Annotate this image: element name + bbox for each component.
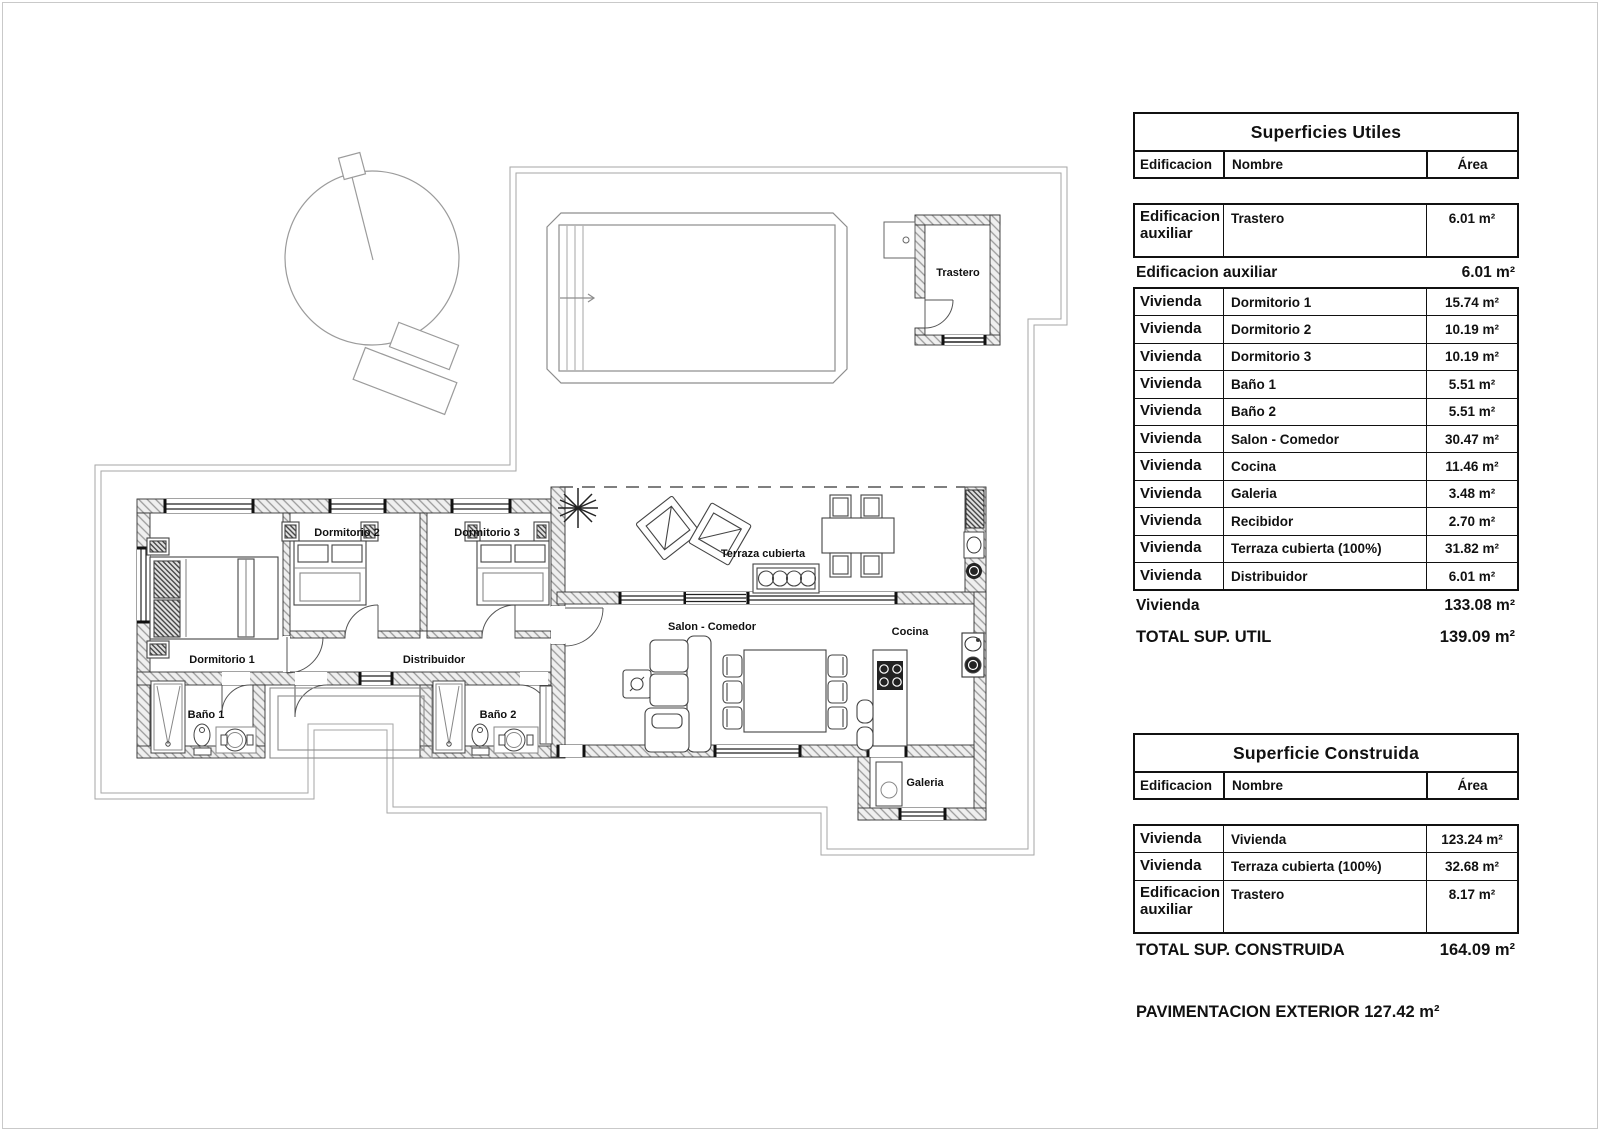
cell-edificacion: Vivienda	[1135, 481, 1223, 507]
room-label-terraza-cubierta: Terraza cubierta	[721, 548, 806, 560]
cell-edificacion: Vivienda	[1135, 508, 1223, 534]
cell-area: 15.74 m²	[1426, 289, 1517, 315]
cell-area: 2.70 m²	[1426, 508, 1517, 534]
summary-row: TOTAL SUP. UTIL139.09 m²	[1133, 620, 1519, 654]
table-row: ViviendaBaño 15.51 m²	[1135, 370, 1517, 397]
room-label-dormitorio-3: Dormitorio 3	[454, 527, 519, 539]
cell-edificacion: Edificacion auxiliar	[1135, 881, 1223, 932]
cell-area: 11.46 m²	[1426, 453, 1517, 479]
room-label-dormitorio-2: Dormitorio 2	[314, 527, 379, 539]
kitchen-sink	[962, 633, 984, 677]
table-header: Superficies Utiles EdificacionNombreÁrea	[1133, 112, 1519, 179]
column-header-2: Área	[1426, 773, 1517, 798]
table-rows-box: ViviendaVivienda123.24 m²ViviendaTerraza…	[1133, 824, 1519, 934]
pavimentacion-exterior-note: PAVIMENTACION EXTERIOR 127.42 m²	[1136, 1003, 1439, 1022]
table-row: Edificacion auxiliarTrastero8.17 m²	[1135, 880, 1517, 932]
lounge-chair-1	[636, 496, 701, 561]
galeria-fixtures	[876, 762, 902, 806]
column-header-row: EdificacionNombreÁrea	[1135, 771, 1517, 798]
cell-nombre: Dormitorio 2	[1223, 316, 1426, 342]
cell-area: 8.17 m²	[1426, 881, 1517, 932]
table-row: ViviendaDormitorio 115.74 m²	[1135, 289, 1517, 315]
cell-area: 3.48 m²	[1426, 481, 1517, 507]
cell-nombre: Distribuidor	[1223, 563, 1426, 589]
trastero-window	[942, 335, 987, 345]
table-rows-box: Edificacion auxiliarTrastero6.01 m²	[1133, 203, 1519, 258]
superficies-utiles-table: Superficies Utiles EdificacionNombreÁrea…	[1133, 112, 1519, 654]
entrance-porch	[270, 688, 432, 758]
table-row: ViviendaTerraza cubierta (100%)32.68 m²	[1135, 852, 1517, 879]
dining-table	[723, 650, 847, 732]
column-header-1: Nombre	[1223, 773, 1426, 798]
column-header-row: EdificacionNombreÁrea	[1135, 150, 1517, 177]
cell-nombre: Baño 1	[1223, 371, 1426, 397]
summary-value: 133.08 m²	[1444, 597, 1515, 615]
room-label-trastero: Trastero	[936, 267, 980, 279]
sink-bano-2	[494, 727, 538, 753]
cell-edificacion: Vivienda	[1135, 344, 1223, 370]
bed-dormitorio-1	[147, 538, 278, 658]
ac-unit	[884, 222, 915, 258]
cell-edificacion: Vivienda	[1135, 289, 1223, 315]
cell-edificacion: Vivienda	[1135, 371, 1223, 397]
cell-nombre: Terraza cubierta (100%)	[1223, 536, 1426, 562]
cell-edificacion: Vivienda	[1135, 563, 1223, 589]
room-label-dormitorio-1: Dormitorio 1	[189, 654, 254, 666]
shower-bano-2	[433, 681, 465, 753]
terrace	[558, 487, 984, 593]
table-body: ViviendaVivienda123.24 m²ViviendaTerraza…	[1133, 824, 1519, 968]
table-row: ViviendaDistribuidor6.01 m²	[1135, 562, 1517, 589]
summary-row: TOTAL SUP. CONSTRUIDA164.09 m²	[1133, 934, 1519, 968]
cell-edificacion: Vivienda	[1135, 536, 1223, 562]
summary-row: Vivienda133.08 m²	[1133, 591, 1519, 620]
table-rows-box: ViviendaDormitorio 115.74 m²ViviendaDorm…	[1133, 287, 1519, 591]
kitchen-fixtures	[857, 633, 984, 750]
table-row: ViviendaCocina11.46 m²	[1135, 452, 1517, 479]
column-header-2: Área	[1426, 152, 1517, 177]
column-header-0: Edificacion	[1135, 152, 1223, 177]
cell-nombre: Dormitorio 1	[1223, 289, 1426, 315]
summary-label: TOTAL SUP. UTIL	[1136, 628, 1271, 647]
well-feature	[285, 153, 459, 415]
shower-bano-1	[151, 681, 185, 753]
cell-area: 32.68 m²	[1426, 853, 1517, 879]
cell-edificacion: Edificacion auxiliar	[1135, 205, 1223, 256]
cell-nombre: Galeria	[1223, 481, 1426, 507]
tv-unit	[623, 670, 651, 698]
column-header-0: Edificacion	[1135, 773, 1223, 798]
sofa	[645, 636, 711, 752]
trastero-building	[884, 215, 1000, 345]
cell-nombre: Recibidor	[1223, 508, 1426, 534]
summary-value: 6.01 m²	[1462, 264, 1515, 282]
summary-row: Edificacion auxiliar6.01 m²	[1133, 258, 1519, 287]
terrace-planter	[753, 564, 819, 593]
table-row: ViviendaSalon - Comedor30.47 m²	[1135, 425, 1517, 452]
table-body: Edificacion auxiliarTrastero6.01 m²Edifi…	[1133, 203, 1519, 654]
table-row: ViviendaGaleria3.48 m²	[1135, 480, 1517, 507]
table-title: Superficies Utiles	[1135, 114, 1517, 150]
table-row: ViviendaDormitorio 210.19 m²	[1135, 315, 1517, 342]
terrace-plant	[558, 488, 598, 528]
cell-edificacion: Vivienda	[1135, 426, 1223, 452]
room-label-cocina: Cocina	[892, 626, 930, 638]
toilet-bano-2	[472, 724, 489, 755]
cell-nombre: Vivienda	[1223, 826, 1426, 852]
cell-edificacion: Vivienda	[1135, 399, 1223, 425]
column-header-1: Nombre	[1223, 152, 1426, 177]
room-label-galeria: Galeria	[906, 777, 944, 789]
room-label-bano-1: Baño 1	[188, 709, 225, 721]
cell-area: 5.51 m²	[1426, 371, 1517, 397]
superficie-construida-table: Superficie Construida EdificacionNombreÁ…	[1133, 733, 1519, 968]
summary-label: Vivienda	[1136, 597, 1199, 615]
cell-area: 31.82 m²	[1426, 536, 1517, 562]
cell-nombre: Terraza cubierta (100%)	[1223, 853, 1426, 879]
cell-area: 10.19 m²	[1426, 316, 1517, 342]
table-header: Superficie Construida EdificacionNombreÁ…	[1133, 733, 1519, 800]
room-label-salon-comedor: Salon - Comedor	[668, 621, 757, 633]
table-row: Edificacion auxiliarTrastero6.01 m²	[1135, 205, 1517, 256]
summary-value: 164.09 m²	[1440, 941, 1515, 960]
cell-nombre: Cocina	[1223, 453, 1426, 479]
room-label-distribuidor: Distribuidor	[403, 654, 466, 666]
living-room-furniture	[623, 636, 847, 752]
cell-area: 123.24 m²	[1426, 826, 1517, 852]
cell-area: 6.01 m²	[1426, 563, 1517, 589]
summary-label: TOTAL SUP. CONSTRUIDA	[1136, 941, 1345, 960]
terrace-dining-set	[822, 495, 894, 577]
cell-edificacion: Vivienda	[1135, 826, 1223, 852]
stool	[857, 700, 873, 723]
cell-edificacion: Vivienda	[1135, 853, 1223, 879]
room-label-bano-2: Baño 2	[480, 709, 517, 721]
cell-area: 30.47 m²	[1426, 426, 1517, 452]
table-row: ViviendaBaño 25.51 m²	[1135, 398, 1517, 425]
summary-value: 139.09 m²	[1440, 628, 1515, 647]
table-title: Superficie Construida	[1135, 735, 1517, 771]
cell-area: 5.51 m²	[1426, 399, 1517, 425]
cell-nombre: Salon - Comedor	[1223, 426, 1426, 452]
table-row: ViviendaVivienda123.24 m²	[1135, 826, 1517, 852]
toilet-bano-1	[194, 724, 211, 755]
swimming-pool	[547, 213, 847, 383]
cell-area: 10.19 m²	[1426, 344, 1517, 370]
table-row: ViviendaDormitorio 310.19 m²	[1135, 343, 1517, 370]
sink-bano-1	[216, 727, 256, 753]
cell-nombre: Trastero	[1223, 205, 1426, 256]
table-row: ViviendaRecibidor2.70 m²	[1135, 507, 1517, 534]
cell-nombre: Baño 2	[1223, 399, 1426, 425]
cell-area: 6.01 m²	[1426, 205, 1517, 256]
cell-edificacion: Vivienda	[1135, 453, 1223, 479]
cell-nombre: Trastero	[1223, 881, 1426, 932]
cell-edificacion: Vivienda	[1135, 316, 1223, 342]
table-row: ViviendaTerraza cubierta (100%)31.82 m²	[1135, 535, 1517, 562]
stool	[857, 727, 873, 750]
cell-nombre: Dormitorio 3	[1223, 344, 1426, 370]
summary-label: Edificacion auxiliar	[1136, 264, 1277, 282]
